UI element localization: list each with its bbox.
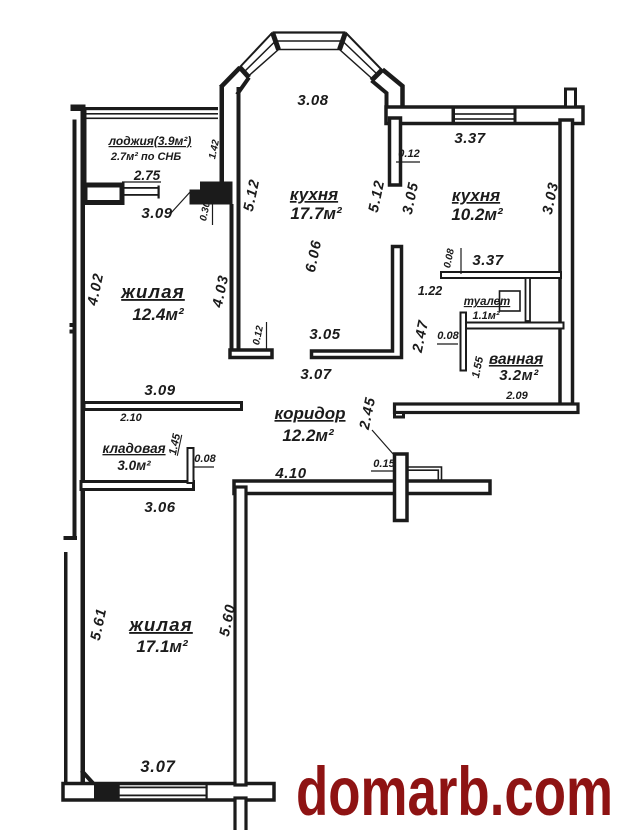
svg-text:туалет: туалет: [464, 296, 511, 308]
svg-text:3.07: 3.07: [300, 366, 331, 383]
svg-text:3.09: 3.09: [141, 205, 172, 222]
svg-text:2.10: 2.10: [119, 412, 142, 424]
svg-text:1.45: 1.45: [167, 432, 183, 456]
svg-text:12.4м²: 12.4м²: [132, 305, 185, 324]
svg-text:4.10: 4.10: [274, 465, 306, 482]
svg-text:ванная: ванная: [489, 351, 543, 368]
svg-text:3.37: 3.37: [454, 130, 485, 147]
svg-text:1.55: 1.55: [470, 355, 486, 379]
svg-text:кладовая: кладовая: [102, 441, 165, 456]
svg-text:кухня: кухня: [452, 186, 500, 205]
svg-text:0.15: 0.15: [373, 458, 395, 470]
svg-text:жилая: жилая: [128, 614, 193, 635]
svg-text:5.12: 5.12: [366, 178, 389, 214]
svg-text:0.08: 0.08: [437, 330, 459, 342]
svg-text:3.06: 3.06: [144, 499, 175, 516]
svg-text:2.09: 2.09: [505, 390, 528, 402]
svg-text:5.12: 5.12: [241, 177, 264, 213]
svg-text:3.2м²: 3.2м²: [499, 367, 539, 384]
svg-text:3.37: 3.37: [472, 252, 503, 269]
svg-text:4.02: 4.02: [85, 271, 108, 308]
svg-text:2.75: 2.75: [133, 168, 161, 183]
svg-text:3.05: 3.05: [400, 180, 423, 216]
svg-text:0.08: 0.08: [442, 247, 457, 269]
svg-text:3.05: 3.05: [309, 326, 340, 343]
svg-text:кухня: кухня: [290, 185, 338, 204]
svg-text:1.22: 1.22: [418, 284, 442, 298]
svg-text:2.47: 2.47: [410, 318, 433, 355]
svg-text:0.08: 0.08: [194, 453, 216, 465]
svg-text:4.03: 4.03: [210, 273, 233, 310]
svg-text:17.1м²: 17.1м²: [136, 637, 189, 656]
svg-text:2.7м² по СНБ: 2.7м² по СНБ: [110, 151, 182, 163]
svg-text:коридор: коридор: [274, 404, 345, 423]
svg-text:лоджия(3.9м²): лоджия(3.9м²): [108, 134, 192, 148]
svg-text:3.09: 3.09: [144, 382, 175, 399]
svg-text:2.45: 2.45: [357, 395, 380, 432]
svg-text:6.06: 6.06: [303, 238, 326, 274]
svg-text:5.61: 5.61: [88, 606, 111, 642]
svg-text:10.2м²: 10.2м²: [451, 205, 504, 224]
svg-text:0.12: 0.12: [251, 324, 266, 346]
svg-text:1.1м²: 1.1м²: [472, 310, 499, 322]
svg-text:3.0м²: 3.0м²: [117, 458, 151, 473]
svg-text:0.12: 0.12: [398, 148, 419, 160]
svg-text:жилая: жилая: [120, 281, 185, 302]
svg-text:domarb.com: domarb.com: [296, 753, 613, 830]
svg-text:3.07: 3.07: [140, 758, 175, 776]
svg-text:12.2м²: 12.2м²: [282, 426, 335, 445]
svg-text:3.08: 3.08: [297, 92, 328, 109]
svg-text:17.7м²: 17.7м²: [290, 204, 343, 223]
